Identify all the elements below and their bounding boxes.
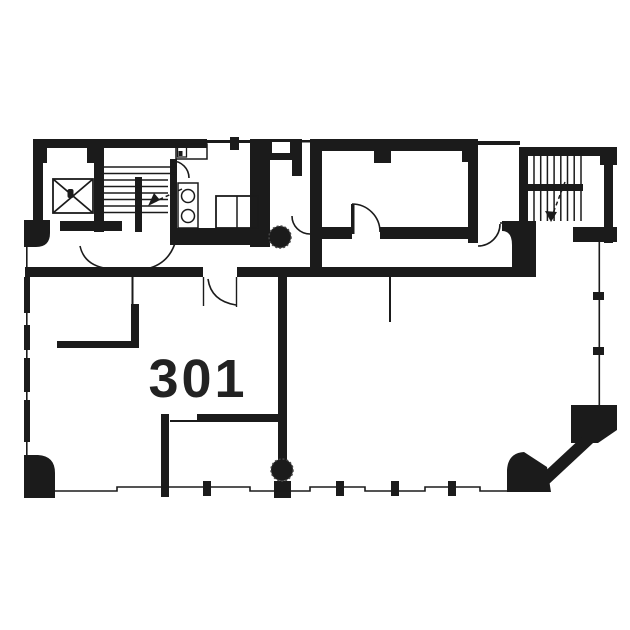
window-wall-east-line [599, 242, 601, 406]
partition-nw-h [57, 341, 139, 348]
column-south-stub [274, 481, 291, 498]
stairs-east-top-wall [519, 147, 613, 156]
stairs-east-br-pier [573, 227, 617, 242]
south-mullion-tick [336, 481, 344, 496]
duct-notch [272, 142, 290, 153]
stair-direction-arrows [148, 182, 565, 222]
stairs-east-landing [519, 184, 583, 191]
duct-right-stub [292, 160, 302, 176]
room-301-label: 301 [148, 349, 247, 409]
vestibule-door-arc [478, 224, 500, 246]
corner-block-southwest [24, 455, 55, 498]
top-wall-thin [207, 140, 250, 143]
corridor-door-arc-west [80, 246, 104, 268]
corridor-wall-east [237, 267, 512, 277]
room-ne-door-arc [352, 204, 380, 232]
elevator-door-mark [68, 189, 74, 198]
room-ne-bottom-wall-a [310, 227, 352, 239]
top-wall-thin-3 [478, 141, 520, 145]
stairs-west-bottom-wall [60, 221, 122, 231]
east-mullion-tick [593, 347, 604, 355]
room-ne-top-pier [374, 139, 391, 163]
east-mullion-tick [593, 292, 604, 300]
room-ne-door-leaf [351, 204, 355, 234]
top-wall-tick [230, 137, 239, 150]
elevator-right-wall [94, 148, 104, 232]
room-ne-top-wall [310, 139, 478, 151]
top-wall-thin-2 [302, 140, 310, 143]
west-window-segment [24, 325, 30, 350]
south-mullion-tick [203, 481, 211, 496]
partition-south-v [161, 414, 169, 497]
stairs-west-rail [135, 177, 142, 232]
corridor-wall-west [25, 267, 203, 277]
partition-nw-thin [132, 277, 134, 305]
sink-faucet-icon [179, 151, 183, 156]
chamfer-diagonal-wall [537, 433, 595, 487]
restroom-right-wall [250, 139, 270, 247]
west-window-segment [24, 277, 30, 313]
toilet-basin-icon [182, 190, 195, 203]
west-window-segment [24, 358, 30, 392]
floor-plan: 301 [0, 0, 630, 630]
duct-door-arc [292, 216, 310, 234]
elevator-left-wall [33, 148, 43, 222]
partition-east-stub [389, 277, 391, 322]
restroom-left-wall [170, 159, 177, 232]
toilet-basin-icon [182, 210, 195, 223]
window-wall-south-ticks [203, 481, 456, 496]
column-south [271, 459, 293, 481]
south-mullion-tick [391, 481, 399, 496]
room-301-east-wall [278, 277, 287, 463]
room-ne-bottom-wall-b [380, 227, 478, 239]
partition-south-thin [170, 420, 197, 422]
entrance-door-arc [208, 279, 236, 305]
west-window-segment [24, 400, 30, 442]
partition-south-h [197, 414, 281, 422]
window-wall-west-segments [24, 277, 30, 442]
stairs-east-corner-pier [600, 147, 617, 165]
floor-plan-drawing: 301 [0, 0, 630, 630]
corner-block-northwest [24, 220, 50, 247]
walls [24, 137, 617, 498]
column-north [269, 226, 291, 248]
room-ne-left-wall [310, 139, 322, 277]
south-mullion-tick [448, 481, 456, 496]
